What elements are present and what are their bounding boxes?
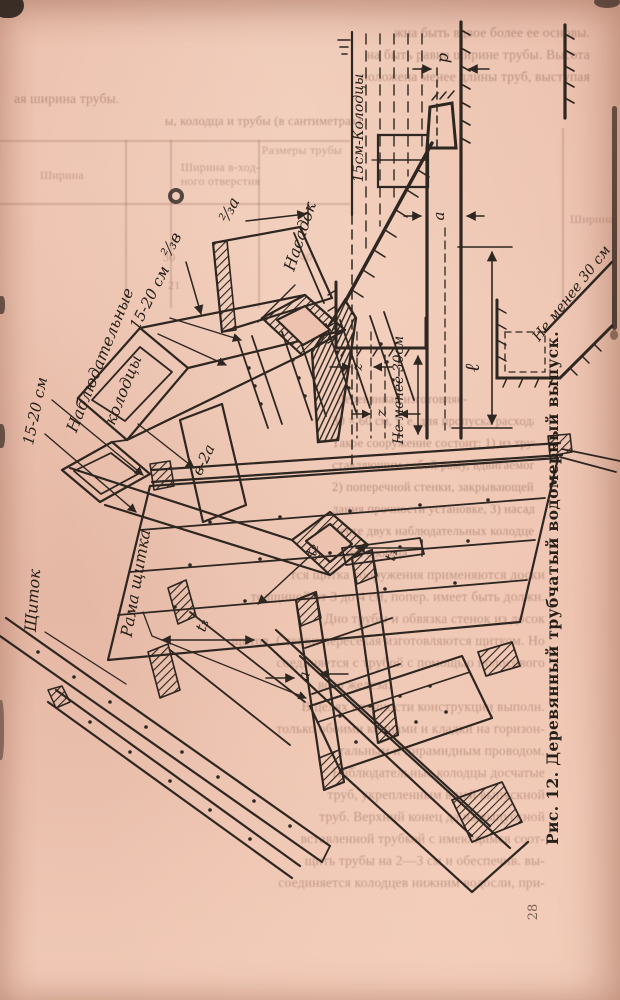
page-number: 28: [526, 904, 541, 921]
figure-drawing: Наблюдательные колодцы 15-20 см 15-20 см…: [0, 0, 620, 1000]
label-two-thirds-b: ⅔в: [157, 229, 185, 260]
label-a-iso: а: [294, 670, 313, 682]
label-b-minus-2a: в-2а: [188, 441, 218, 478]
label-two-thirds-a: ⅔а: [215, 194, 244, 225]
scan-blemish-left-2: [0, 424, 5, 448]
label-ell: ℓ: [460, 363, 484, 372]
scanned-book-page: жна быть вдвое более ее основы. на быть …: [0, 0, 620, 1000]
scan-blemish-right-speck: [610, 330, 618, 340]
scan-blemish-left-3: [0, 700, 4, 760]
label-a-section: а: [430, 212, 448, 221]
scan-blemish-right-edge: [612, 106, 617, 330]
label-t3: t₃: [192, 617, 213, 634]
label-nozzle: Насадок: [279, 199, 320, 274]
label-shield-frame: Рама щитка: [117, 528, 155, 639]
label-not-less-30-right: Не менее 30 см: [529, 243, 614, 346]
scan-blemish-left-1: [0, 296, 5, 314]
isometric-view: [0, 190, 620, 892]
label-p: р: [433, 53, 452, 63]
label-wells-15cm: 15см-Колодцы: [351, 74, 367, 183]
figure-caption: Рис. 12. Деревянный трубчатый водомерный…: [543, 331, 562, 845]
label-z-lower: z: [374, 409, 390, 418]
label-not-less-30-left: Не менее 30см: [391, 336, 407, 445]
label-shield: Щиток: [21, 568, 44, 634]
label-z-upper: z: [350, 363, 366, 372]
